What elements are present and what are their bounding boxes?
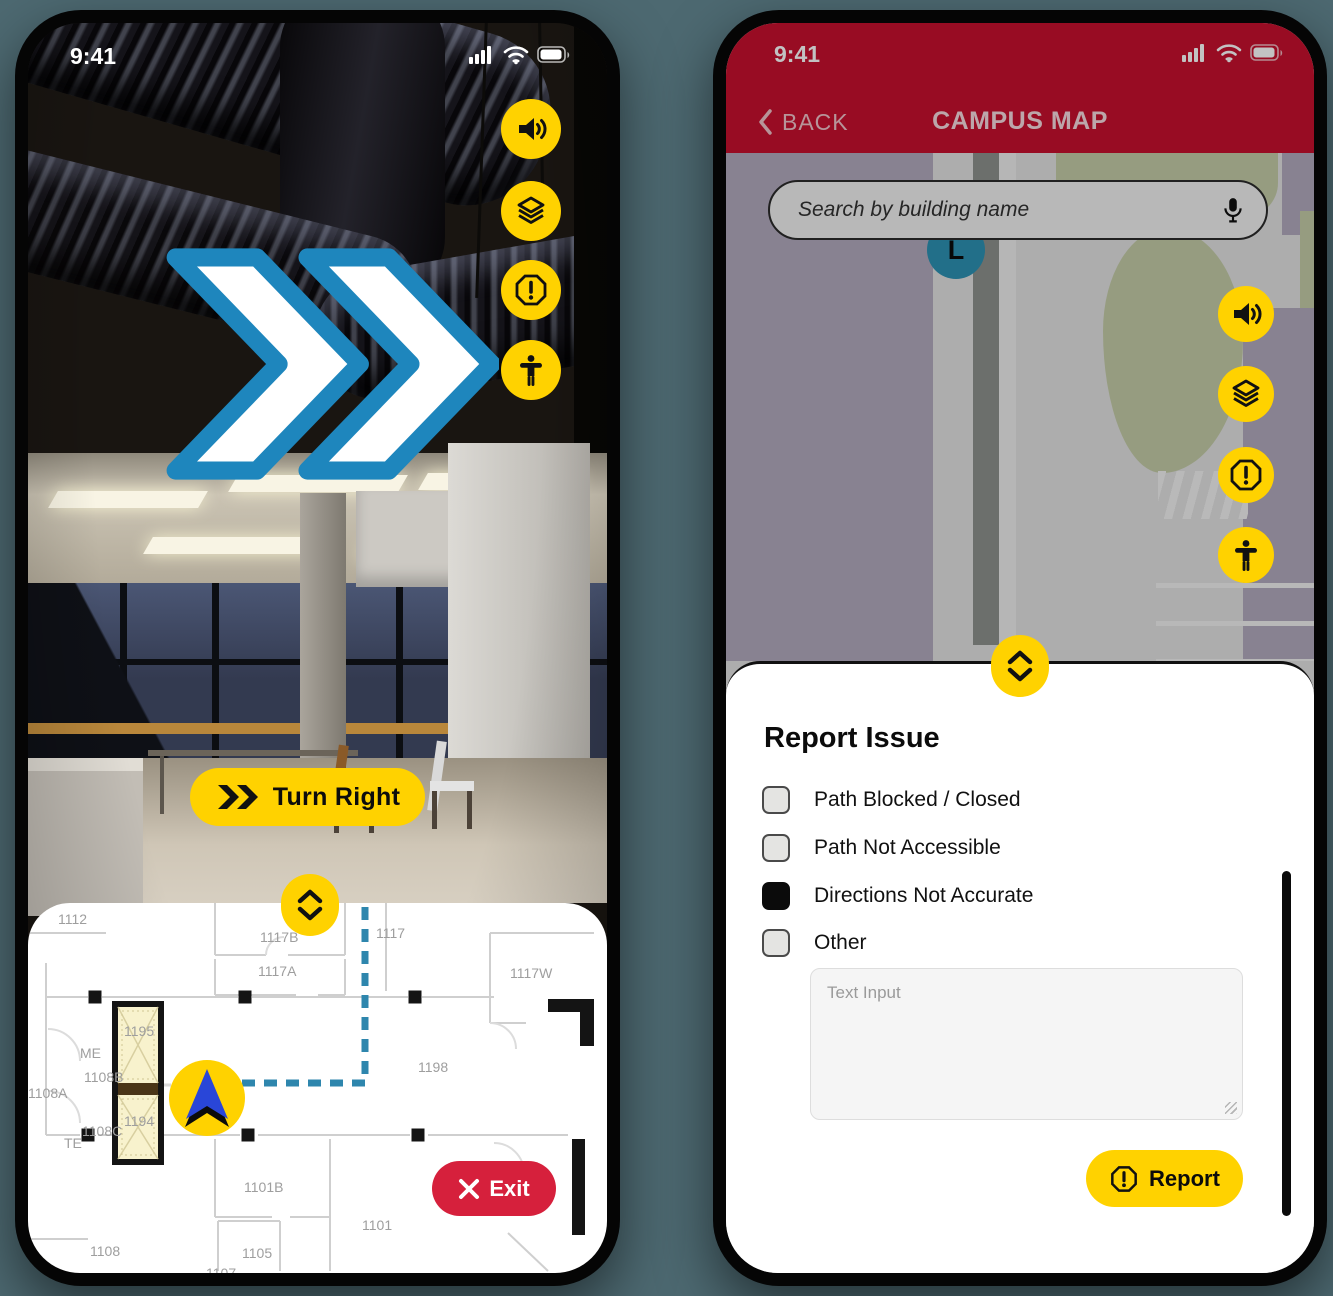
alert-octagon-icon xyxy=(1109,1164,1139,1194)
room-label-1117W: 1117W xyxy=(510,965,552,981)
report-option-label: Directions Not Accurate xyxy=(814,884,1033,908)
room-label-1107: 1107 xyxy=(206,1265,236,1273)
map-lawn xyxy=(1103,228,1243,473)
room-label-1117: 1117 xyxy=(376,925,405,941)
layers-button[interactable] xyxy=(501,181,561,241)
clock: 9:41 xyxy=(774,41,820,68)
audio-button[interactable] xyxy=(501,99,561,159)
floorplan-panel: 11121117B11171117A1117W1195ME1108B1108A1… xyxy=(28,903,607,1273)
sheet-drag-handle[interactable] xyxy=(991,635,1049,697)
scrollbar[interactable] xyxy=(1282,871,1291,1216)
report-issue-sheet: Report Issue Path Blocked / Closed Path … xyxy=(726,661,1314,1273)
report-option-label: Other xyxy=(814,931,867,955)
chevron-up-down-icon xyxy=(1000,646,1040,686)
turn-instruction-label: Turn Right xyxy=(273,783,401,812)
map-screen: 9:41 BACK CAMPUS MAP L xyxy=(726,23,1314,1273)
room-label-1105: 1105 xyxy=(242,1245,272,1261)
wifi-icon xyxy=(1216,43,1242,63)
speaker-icon xyxy=(1228,296,1264,332)
chevron-up-down-icon xyxy=(290,885,330,925)
phone-campus-map: 9:41 BACK CAMPUS MAP L xyxy=(713,10,1327,1286)
map-parking-lines xyxy=(1156,583,1314,661)
report-option[interactable]: Directions Not Accurate xyxy=(762,882,1033,910)
status-icons xyxy=(469,45,571,65)
report-option[interactable]: Path Blocked / Closed xyxy=(762,786,1021,814)
room-label-1101B: 1101B xyxy=(244,1179,283,1195)
report-submit-button[interactable]: Report xyxy=(1086,1150,1243,1207)
report-issue-button[interactable] xyxy=(501,260,561,320)
alert-octagon-icon xyxy=(513,272,549,308)
page-title: CAMPUS MAP xyxy=(726,107,1314,136)
room-label-1108: 1108 xyxy=(90,1243,120,1259)
room-label-TE: TE xyxy=(64,1135,82,1151)
checkbox[interactable] xyxy=(762,786,790,814)
double-chevron-icon xyxy=(215,783,261,811)
layers-button[interactable] xyxy=(1218,366,1274,422)
layers-icon xyxy=(513,193,549,229)
exit-button[interactable]: Exit xyxy=(432,1161,556,1216)
room-label-1117A: 1117A xyxy=(258,963,296,979)
report-option[interactable]: Path Not Accessible xyxy=(762,834,1001,862)
status-bar-left: 9:41 xyxy=(28,41,607,71)
room-label-1117B: 1117B xyxy=(260,929,298,945)
close-icon xyxy=(458,1178,480,1200)
sheet-title: Report Issue xyxy=(764,722,940,755)
resize-handle-icon[interactable] xyxy=(1225,1102,1237,1114)
direction-chevrons xyxy=(163,236,499,492)
accessibility-button[interactable] xyxy=(501,340,561,400)
clock: 9:41 xyxy=(70,43,116,70)
signal-icon xyxy=(469,45,495,65)
report-submit-label: Report xyxy=(1149,1166,1220,1192)
report-option-label: Path Blocked / Closed xyxy=(814,788,1021,812)
room-label-1195: 1195 xyxy=(124,1023,154,1039)
layers-icon xyxy=(1228,376,1264,412)
search-bar xyxy=(768,180,1268,240)
report-option-label: Path Not Accessible xyxy=(814,836,1001,860)
accessibility-icon xyxy=(1228,537,1264,573)
checkbox[interactable] xyxy=(762,882,790,910)
checkbox[interactable] xyxy=(762,929,790,957)
map-drawer-handle[interactable] xyxy=(281,874,339,936)
signal-icon xyxy=(1182,43,1208,63)
room-label-1108C: 1108C xyxy=(82,1123,122,1139)
floorplan-room-labels: 11121117B11171117A1117W1195ME1108B1108A1… xyxy=(28,903,607,1273)
wifi-icon xyxy=(503,45,529,65)
report-option[interactable]: Other xyxy=(762,929,867,957)
accessibility-icon xyxy=(513,352,549,388)
alert-octagon-icon xyxy=(1228,457,1264,493)
status-bar-right: 9:41 xyxy=(726,39,1314,69)
speaker-icon xyxy=(513,111,549,147)
room-label-1198: 1198 xyxy=(418,1059,448,1075)
ar-screen: 9:41 Turn Right xyxy=(28,23,607,1273)
status-icons xyxy=(1182,43,1284,63)
audio-button[interactable] xyxy=(1218,286,1274,342)
battery-icon xyxy=(1250,44,1284,62)
room-label-1108A: 1108A xyxy=(28,1085,67,1101)
exit-label: Exit xyxy=(489,1176,529,1202)
report-issue-button[interactable] xyxy=(1218,447,1274,503)
room-label-1194: 1194 xyxy=(124,1113,154,1129)
issue-text-input-wrap xyxy=(810,968,1243,1120)
battery-icon xyxy=(537,46,571,64)
search-input[interactable] xyxy=(796,197,1220,223)
microphone-icon[interactable] xyxy=(1220,195,1246,225)
accessibility-button[interactable] xyxy=(1218,527,1274,583)
turn-instruction-button[interactable]: Turn Right xyxy=(190,768,425,826)
issue-text-input[interactable] xyxy=(810,968,1243,1120)
phone-ar-navigation: 9:41 Turn Right xyxy=(15,10,620,1286)
room-label-1112: 1112 xyxy=(58,911,87,927)
map-lawn xyxy=(1300,211,1314,315)
room-label-1108B: 1108B xyxy=(84,1069,123,1085)
checkbox[interactable] xyxy=(762,834,790,862)
room-label-ME: ME xyxy=(80,1045,101,1061)
app-header: 9:41 BACK CAMPUS MAP xyxy=(726,23,1314,153)
room-label-1101: 1101 xyxy=(362,1217,392,1233)
